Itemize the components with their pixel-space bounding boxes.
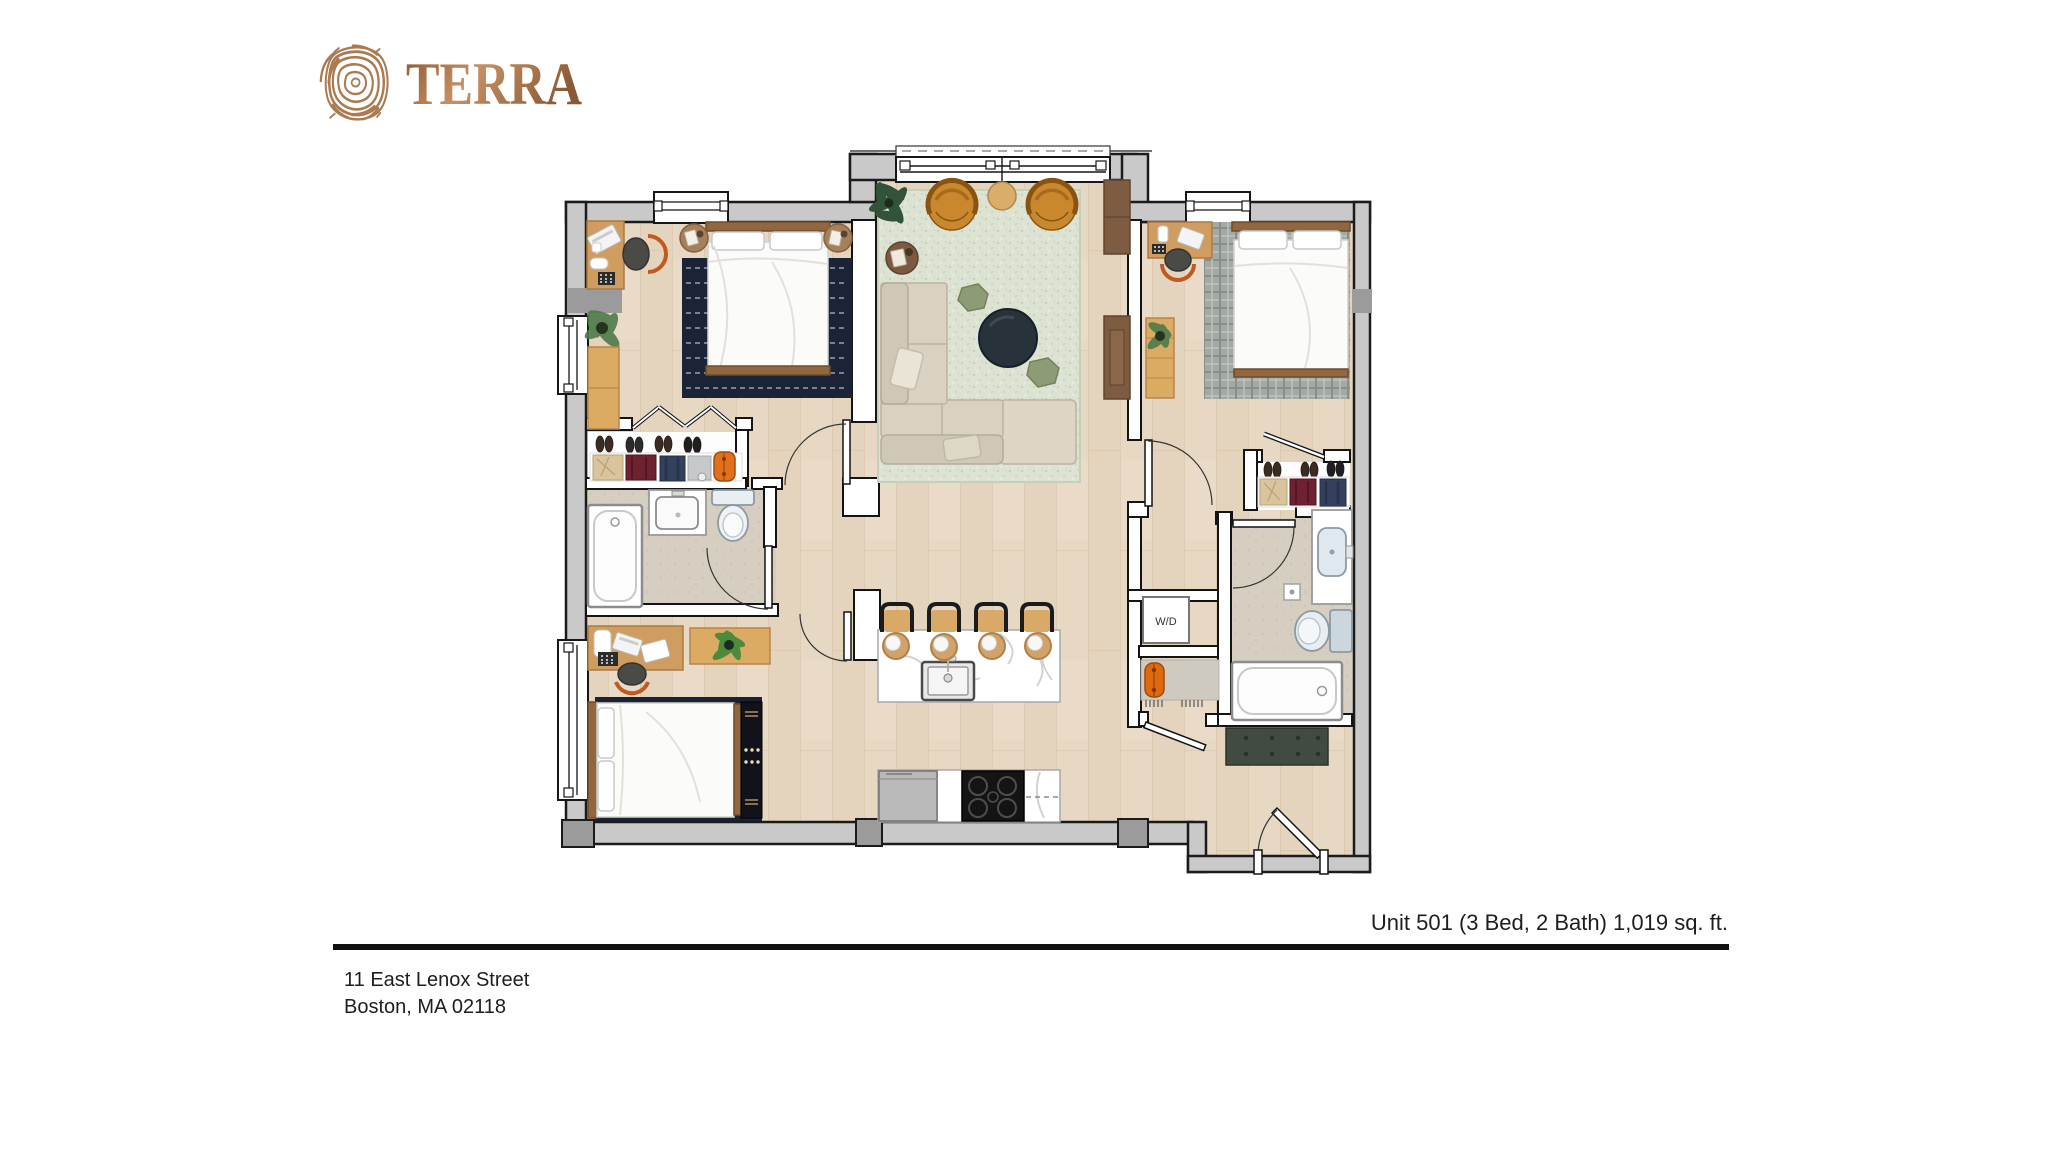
svg-text:Unit 501 (3 Bed, 2 Bath) 1,019: Unit 501 (3 Bed, 2 Bath) 1,019 sq. ft. (1371, 910, 1728, 935)
svg-text:TERRA: TERRA (406, 51, 582, 117)
svg-text:11 East Lenox Street: 11 East Lenox Street (344, 969, 530, 991)
svg-text:Boston, MA 02118: Boston, MA 02118 (344, 996, 506, 1018)
svg-text:W/D: W/D (1155, 616, 1176, 628)
